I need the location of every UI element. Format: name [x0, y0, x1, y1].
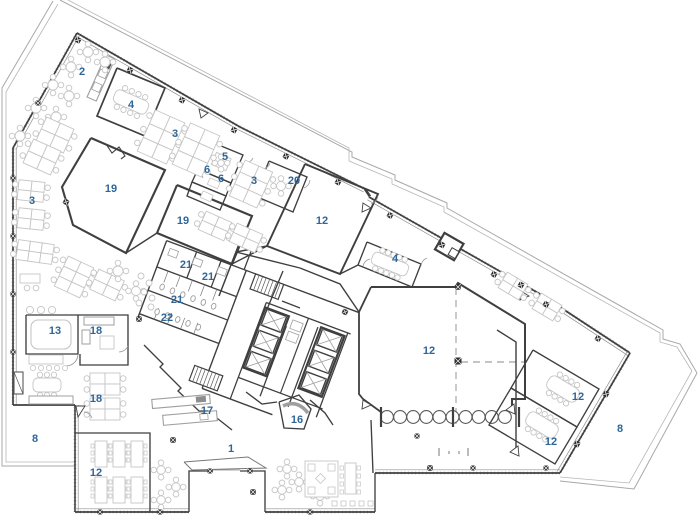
svg-text:12: 12: [90, 467, 102, 479]
svg-text:12: 12: [545, 436, 557, 448]
svg-text:21: 21: [180, 259, 192, 271]
svg-text:18: 18: [90, 393, 102, 405]
svg-text:19: 19: [105, 183, 117, 195]
svg-text:17: 17: [201, 405, 213, 417]
svg-text:18: 18: [90, 325, 102, 337]
svg-text:5: 5: [222, 151, 228, 163]
svg-text:6: 6: [204, 164, 210, 176]
svg-text:8: 8: [617, 423, 623, 435]
svg-text:1: 1: [228, 443, 234, 455]
svg-text:12: 12: [572, 391, 584, 403]
svg-text:3: 3: [29, 195, 35, 207]
svg-text:3: 3: [251, 175, 257, 187]
svg-text:16: 16: [291, 414, 303, 426]
svg-text:12: 12: [423, 345, 435, 357]
svg-text:21: 21: [202, 271, 214, 283]
svg-text:12: 12: [316, 215, 328, 227]
svg-text:22: 22: [161, 312, 173, 324]
svg-text:8: 8: [32, 433, 38, 445]
svg-text:3: 3: [172, 128, 178, 140]
svg-text:21: 21: [171, 294, 183, 306]
svg-text:20: 20: [288, 175, 300, 187]
svg-text:4: 4: [392, 253, 399, 265]
svg-text:13: 13: [49, 325, 61, 337]
svg-text:2: 2: [79, 66, 85, 78]
svg-text:6: 6: [218, 173, 224, 185]
svg-text:19: 19: [177, 215, 189, 227]
svg-text:4: 4: [128, 99, 135, 111]
